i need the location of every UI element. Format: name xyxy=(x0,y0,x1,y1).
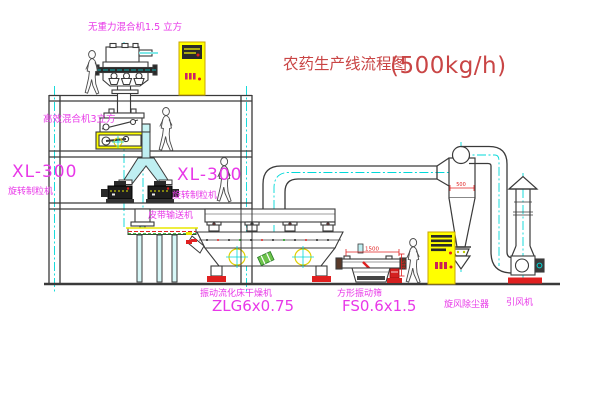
cyclone-diameter-text: 500 xyxy=(456,182,466,188)
label-granulator-model-right: XL-300 xyxy=(177,165,242,185)
cad-flowchart-page: 500 xyxy=(0,0,600,403)
dryer-mounts xyxy=(207,222,335,231)
label-granulator-name-right: 旋转制粒机 xyxy=(172,189,217,201)
label-screen-model: FS0.6x1.5 xyxy=(342,297,416,315)
drawing-title: 农药生产线流程图 xyxy=(283,55,407,73)
label-high-eff-mixer: 高效混合机3立方 xyxy=(43,113,116,125)
flowchart-drawing: 500 xyxy=(0,0,600,403)
fluidbed-dryer xyxy=(186,209,343,282)
label-granulator-model-left: XL-300 xyxy=(12,162,77,182)
label-belt-conveyor: 皮带输送机 xyxy=(148,209,193,221)
label-cyclone: 旋风除尘器 xyxy=(444,298,489,310)
drawing-title-capacity: (500kg/h) xyxy=(390,53,507,79)
worker-ground xyxy=(406,239,420,283)
screen-height-text: 345 xyxy=(402,260,408,270)
screen-length-text: 1500 xyxy=(365,247,379,253)
worker-floor2 xyxy=(159,108,173,152)
label-granulator-name-left: 旋转制粒机 xyxy=(8,185,53,197)
control-cabinet-top xyxy=(179,42,205,95)
control-cabinet-bottom xyxy=(428,232,455,284)
label-gravity-mixer: 无重力混合机1.5 立方 xyxy=(88,21,182,33)
induced-draft-fan xyxy=(508,256,544,284)
label-dryer-model: ZLG6x0.75 xyxy=(212,297,294,315)
label-fan: 引风机 xyxy=(506,296,533,308)
belt-conveyor xyxy=(126,228,204,282)
